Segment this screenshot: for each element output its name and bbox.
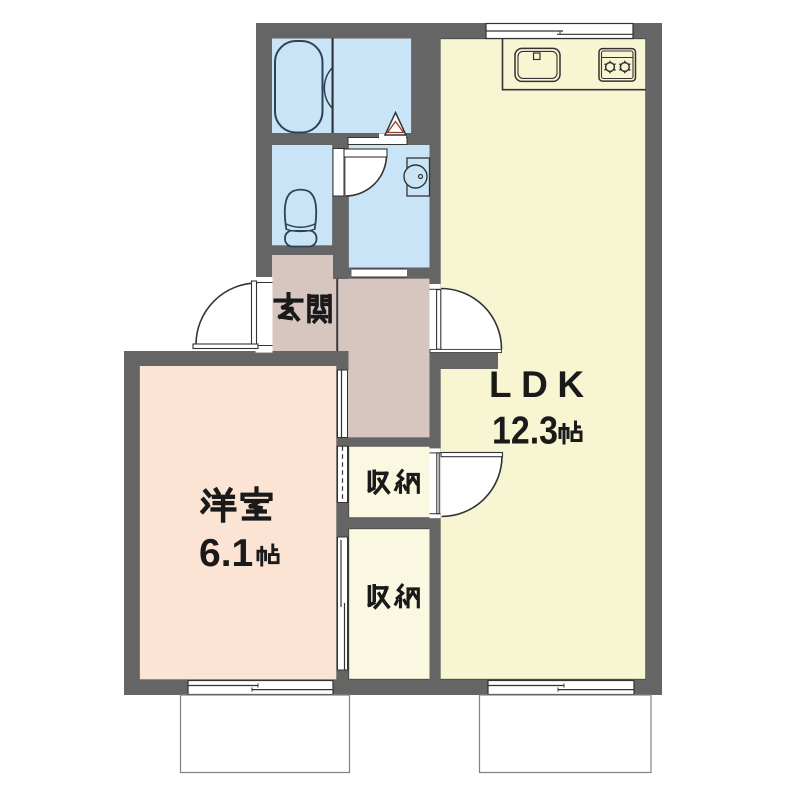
- svg-text:LDK: LDK: [489, 364, 594, 405]
- svg-text:6.1: 6.1: [199, 532, 253, 575]
- svg-text:12.3: 12.3: [492, 410, 558, 453]
